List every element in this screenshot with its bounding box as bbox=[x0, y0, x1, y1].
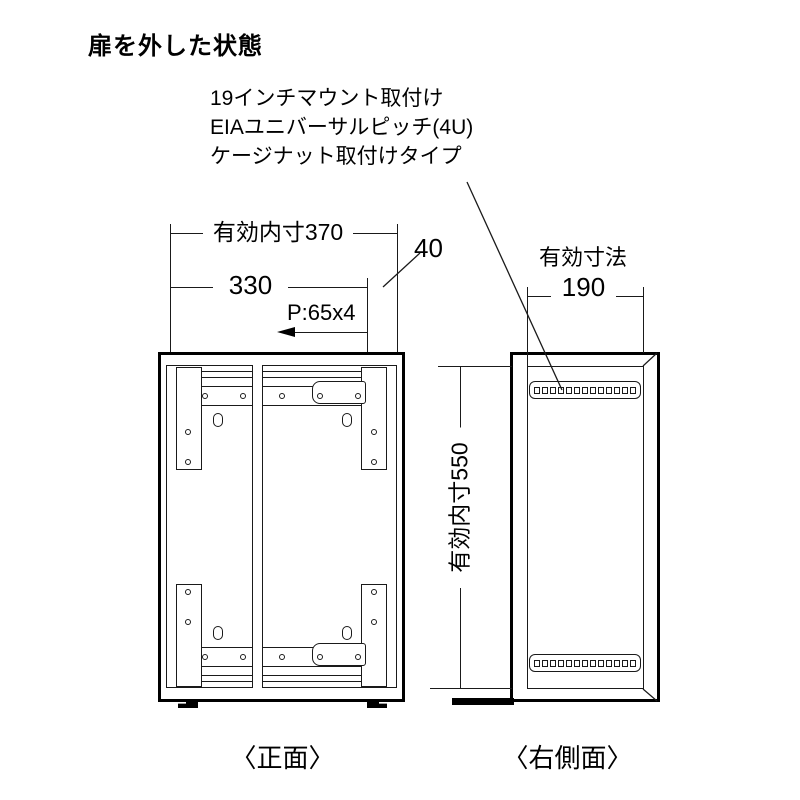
cage-nut-square bbox=[550, 387, 556, 394]
cage-nut-square bbox=[542, 387, 548, 394]
slot bbox=[342, 413, 352, 427]
hole bbox=[185, 619, 191, 625]
cage-nut-square bbox=[582, 387, 588, 394]
dim-rail-width-label: 330 bbox=[213, 270, 288, 300]
ext-line bbox=[170, 224, 171, 352]
front-top-strip bbox=[202, 371, 363, 378]
hole bbox=[240, 393, 246, 399]
cage-nut-square bbox=[550, 660, 556, 667]
page-title: 扉を外した状態 bbox=[88, 26, 263, 61]
hole bbox=[355, 393, 361, 399]
annotation-line-3: ケージナット取付けタイプ bbox=[210, 142, 473, 171]
cage-nut-square bbox=[630, 387, 636, 394]
hole bbox=[317, 654, 323, 660]
hole bbox=[371, 619, 377, 625]
front-center-channel bbox=[252, 365, 263, 688]
hole bbox=[185, 589, 191, 595]
hole bbox=[371, 459, 377, 465]
hole bbox=[371, 429, 377, 435]
cage-nut-square bbox=[542, 660, 548, 667]
dim-hole-pitch-label: P:65x4 bbox=[287, 300, 356, 326]
cage-nut-square bbox=[582, 660, 588, 667]
front-rail-bottom-left bbox=[176, 584, 202, 687]
technical-diagram: 扉を外した状態 19インチマウント取付け EIAユニバーサルピッチ(4U) ケー… bbox=[0, 0, 800, 800]
cage-nut-square bbox=[614, 387, 620, 394]
slot bbox=[213, 626, 223, 640]
cage-nut-square bbox=[622, 387, 628, 394]
front-bottom-strip bbox=[202, 675, 363, 682]
cage-nut-strip-top bbox=[529, 381, 641, 399]
hole bbox=[202, 393, 208, 399]
hole bbox=[317, 393, 323, 399]
annotation-line-1: 19インチマウント取付け bbox=[210, 84, 473, 113]
dim-inner-height-label: 有効内寸550 bbox=[447, 428, 474, 588]
cage-nut-square bbox=[574, 660, 580, 667]
hole bbox=[279, 654, 285, 660]
dim-line-550-upper bbox=[460, 367, 461, 428]
ext-line bbox=[643, 287, 644, 353]
hole bbox=[185, 459, 191, 465]
cage-nut-square bbox=[622, 660, 628, 667]
cage-nut-square bbox=[606, 387, 612, 394]
cage-nut-square bbox=[614, 660, 620, 667]
cage-nut-square bbox=[630, 660, 636, 667]
cage-nut-square bbox=[590, 660, 596, 667]
cage-nut-square bbox=[558, 387, 564, 394]
ext-line bbox=[438, 366, 512, 367]
cage-nut-square bbox=[566, 660, 572, 667]
dim-side-offset-label: 40 bbox=[414, 233, 443, 264]
hole bbox=[279, 393, 285, 399]
cage-nut-square bbox=[606, 660, 612, 667]
hole bbox=[202, 654, 208, 660]
side-base-plate bbox=[452, 698, 514, 705]
dim-line-550-lower bbox=[460, 588, 461, 688]
cage-nut-square bbox=[598, 660, 604, 667]
dim-depth-value: 190 bbox=[551, 272, 616, 302]
dim-depth-title: 有効寸法 bbox=[523, 240, 643, 272]
hole bbox=[371, 589, 377, 595]
front-rail-bottom-right bbox=[361, 584, 387, 687]
hole bbox=[240, 654, 246, 660]
ext-line bbox=[527, 287, 528, 367]
cage-nut-square bbox=[590, 387, 596, 394]
cage-nut-square bbox=[558, 660, 564, 667]
cage-nut-strip-bottom bbox=[529, 654, 641, 672]
slot bbox=[213, 413, 223, 427]
slot bbox=[342, 626, 352, 640]
side-view-caption: 〈右側面〉 bbox=[495, 738, 640, 775]
mount-annotation: 19インチマウント取付け EIAユニバーサルピッチ(4U) ケージナット取付けタ… bbox=[210, 84, 473, 171]
front-view-caption: 〈正面〉 bbox=[200, 738, 365, 775]
side-view-inner-panel bbox=[527, 366, 644, 689]
ext-line bbox=[367, 278, 368, 352]
front-rail-top-left bbox=[176, 367, 202, 470]
cage-nut-square bbox=[566, 387, 572, 394]
cage-nut-square bbox=[598, 387, 604, 394]
ext-line bbox=[430, 688, 512, 689]
hole bbox=[185, 429, 191, 435]
cage-nut-square bbox=[534, 387, 540, 394]
dim-inner-width-label: 有効内寸370 bbox=[203, 218, 353, 246]
cage-nut-square bbox=[574, 387, 580, 394]
hole bbox=[355, 654, 361, 660]
ext-line bbox=[397, 224, 398, 352]
annotation-line-2: EIAユニバーサルピッチ(4U) bbox=[210, 113, 473, 142]
pitch-arrow-line bbox=[284, 332, 368, 333]
cage-nut-square bbox=[534, 660, 540, 667]
